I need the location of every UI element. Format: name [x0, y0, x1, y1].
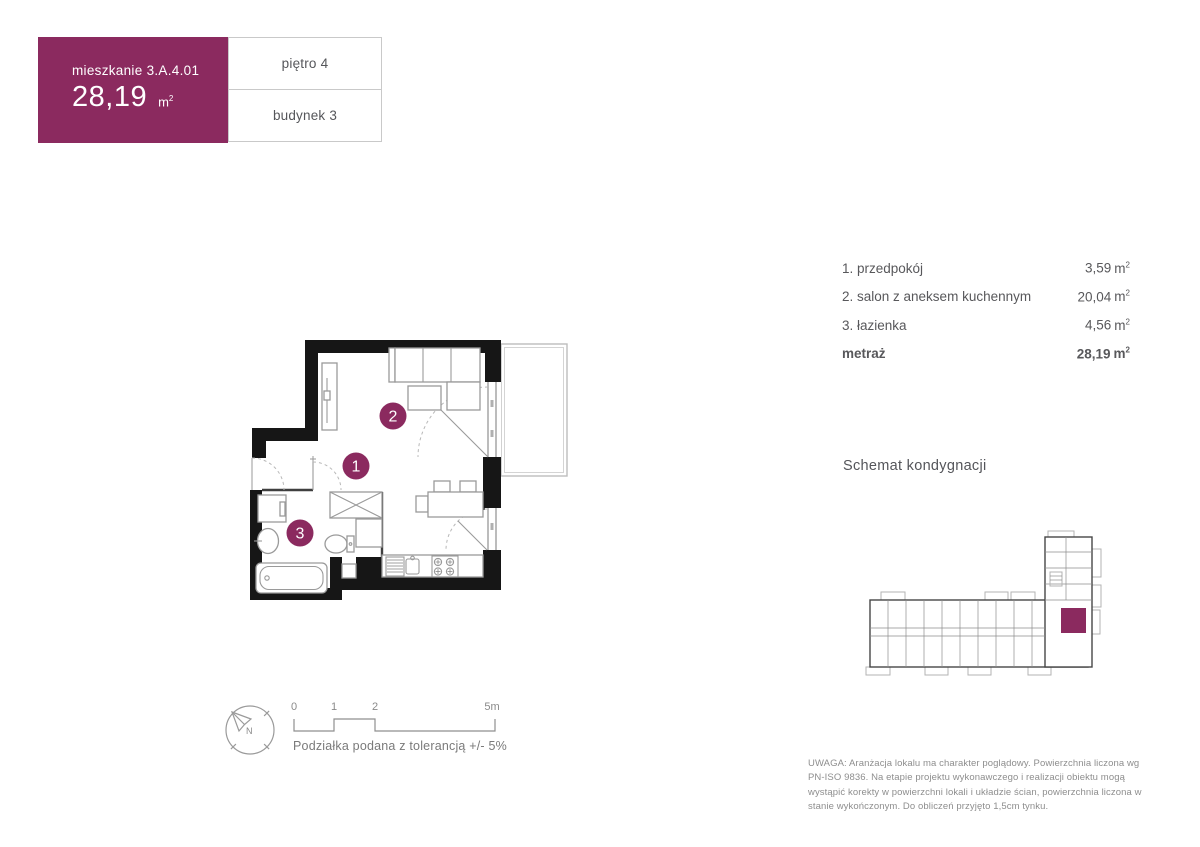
scale-note: Podziałka podana z tolerancją +/- 5% — [293, 739, 507, 753]
dining-table — [416, 481, 483, 517]
shaft — [330, 492, 382, 518]
scale-bar: 0 1 2 5m — [285, 696, 510, 740]
room-row: 1. przedpokój 3,59m2 — [842, 258, 1130, 276]
coffee-table — [408, 386, 441, 410]
toilet — [325, 535, 354, 553]
compass-label: N — [246, 726, 253, 736]
unit-summary-box: mieszkanie 3.A.4.01 28,19 m2 — [38, 37, 228, 143]
svg-text:1: 1 — [352, 459, 361, 476]
room-label: 3. łazienka — [842, 319, 907, 333]
unit-area-value: 28,19 — [72, 81, 147, 114]
room-area: 4,56m2 — [1085, 315, 1130, 333]
entry-door-arc — [252, 458, 284, 490]
room-area: 20,04m2 — [1078, 287, 1131, 305]
unit-area: 28,19 m2 — [72, 81, 228, 114]
total-area: 28,19m2 — [1077, 344, 1130, 362]
schematic-building-outline — [870, 537, 1092, 667]
building-label: budynek 3 — [273, 108, 337, 123]
wall-niche — [342, 564, 356, 578]
disclaimer: UWAGA: Aranżacja lokalu ma charakter pog… — [808, 757, 1158, 814]
building-box: budynek 3 — [228, 89, 382, 142]
svg-text:2: 2 — [389, 409, 398, 426]
balcony-door-window — [485, 382, 501, 457]
scale-label: 1 — [331, 701, 337, 713]
wardrobe — [322, 363, 337, 430]
scale-label: 0 — [291, 701, 297, 713]
room-badge-1: 1 — [343, 453, 370, 480]
unit-area-unit: m2 — [158, 94, 173, 109]
unit-name: mieszkanie 3.A.4.01 — [72, 63, 228, 78]
floor-box: piętro 4 — [228, 37, 382, 90]
total-label: metraż — [842, 347, 886, 361]
washing-machine — [258, 495, 286, 522]
room-row: 2. salon z aneksem kuchennym 20,04m2 — [842, 287, 1130, 305]
floor-plan: 1 2 3 — [240, 330, 580, 615]
balcony — [501, 344, 567, 476]
compass: N — [221, 701, 279, 759]
room-area: 3,59m2 — [1085, 258, 1130, 276]
room-total-row: metraż 28,19m2 — [842, 344, 1130, 362]
schematic-unit-highlight — [1061, 608, 1086, 633]
bathtub — [256, 563, 327, 593]
room-label: 1. przedpokój — [842, 262, 923, 276]
bathroom-door — [310, 456, 341, 490]
bathroom-cabinet — [356, 519, 382, 547]
floor-schematic — [858, 524, 1190, 676]
room-label: 2. salon z aneksem kuchennym — [842, 290, 1031, 304]
svg-text:3: 3 — [296, 526, 305, 543]
room-row: 3. łazienka 4,56m2 — [842, 315, 1130, 333]
schematic-title: Schemat kondygnacji — [843, 458, 987, 474]
room-badge-3: 3 — [287, 520, 314, 547]
floor-label: piętro 4 — [282, 56, 329, 71]
room-badge-2: 2 — [380, 403, 407, 430]
room-list: 1. przedpokój 3,59m2 2. salon z aneksem … — [842, 258, 1130, 372]
apartment-card-page: mieszkanie 3.A.4.01 28,19 m2 piętro 4 bu… — [0, 0, 1200, 847]
scale-label: 5m — [484, 701, 499, 713]
kitchen-window — [485, 508, 501, 550]
scale-label: 2 — [372, 701, 378, 713]
